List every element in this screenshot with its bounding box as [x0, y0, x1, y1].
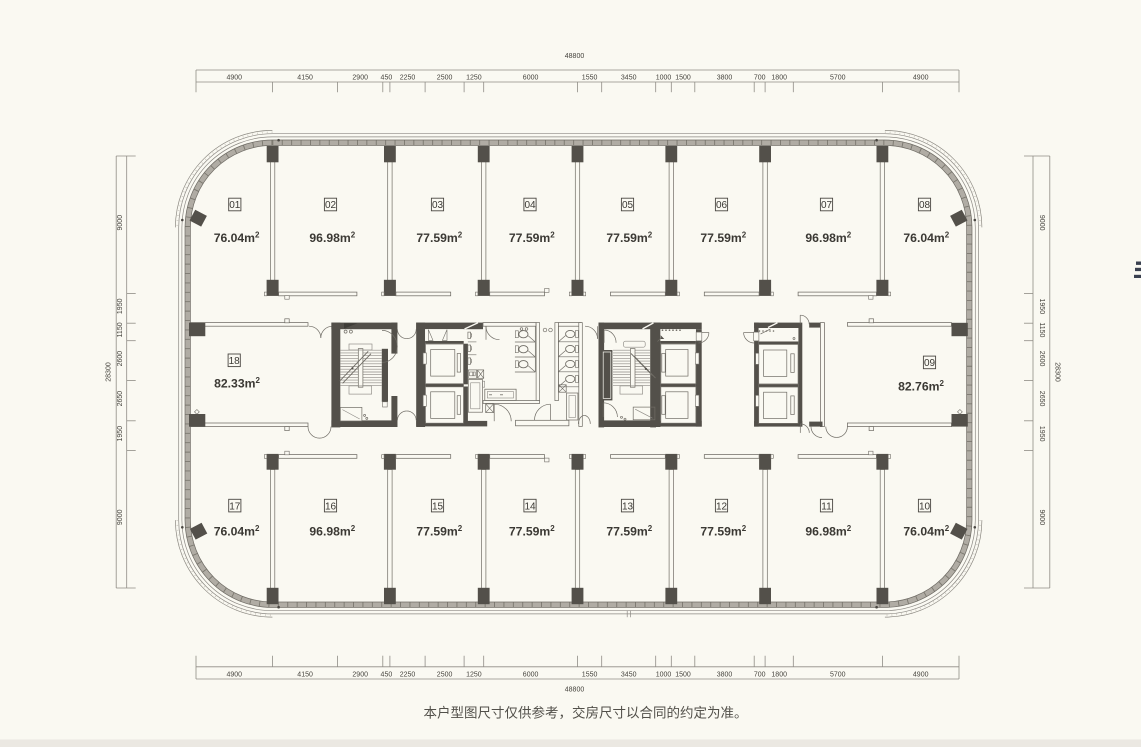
svg-text:09: 09: [924, 358, 936, 369]
svg-text:16: 16: [325, 501, 337, 512]
svg-text:4150: 4150: [297, 671, 313, 678]
svg-text:9000: 9000: [1038, 215, 1045, 231]
svg-text:1950: 1950: [117, 426, 124, 442]
svg-text:1150: 1150: [1038, 322, 1045, 337]
svg-text:82.76m2: 82.76m2: [898, 379, 944, 394]
svg-text:96.98m2: 96.98m2: [805, 231, 851, 246]
svg-text:3450: 3450: [621, 671, 637, 678]
svg-text:77.59m2: 77.59m2: [700, 231, 746, 246]
svg-text:28300: 28300: [106, 362, 113, 382]
svg-text:06: 06: [716, 200, 728, 211]
svg-text:11: 11: [821, 501, 832, 512]
svg-text:1950: 1950: [1038, 426, 1045, 442]
svg-text:17: 17: [229, 501, 241, 512]
svg-text:96.98m2: 96.98m2: [309, 231, 355, 246]
svg-text:1250: 1250: [466, 74, 482, 81]
svg-text:08: 08: [919, 200, 931, 211]
svg-text:15: 15: [432, 501, 444, 512]
svg-text:77.59m2: 77.59m2: [700, 524, 746, 539]
svg-text:96.98m2: 96.98m2: [805, 524, 851, 539]
svg-text:77.59m2: 77.59m2: [606, 524, 652, 539]
svg-text:1150: 1150: [117, 322, 124, 337]
svg-text:5700: 5700: [830, 671, 846, 678]
svg-text:18: 18: [229, 356, 241, 367]
svg-text:82.33m2: 82.33m2: [214, 376, 260, 391]
svg-text:76.04m2: 76.04m2: [214, 524, 260, 539]
svg-text:450: 450: [381, 74, 393, 81]
svg-text:76.04m2: 76.04m2: [214, 231, 260, 246]
svg-text:1800: 1800: [771, 74, 787, 81]
svg-text:48800: 48800: [565, 53, 585, 60]
svg-text:05: 05: [622, 200, 634, 211]
svg-text:4150: 4150: [297, 74, 313, 81]
svg-text:4900: 4900: [913, 671, 929, 678]
svg-text:2650: 2650: [1038, 391, 1045, 407]
svg-text:2250: 2250: [400, 74, 416, 81]
svg-text:1000: 1000: [656, 74, 672, 81]
svg-text:28300: 28300: [1054, 362, 1061, 382]
svg-text:6000: 6000: [523, 671, 539, 678]
svg-text:02: 02: [325, 200, 337, 211]
svg-text:77.59m2: 77.59m2: [509, 524, 555, 539]
svg-text:48800: 48800: [565, 687, 585, 694]
svg-text:1000: 1000: [656, 671, 672, 678]
svg-text:2500: 2500: [437, 74, 453, 81]
svg-text:13: 13: [622, 501, 634, 512]
svg-text:700: 700: [754, 671, 766, 678]
svg-text:9000: 9000: [117, 215, 124, 231]
svg-text:1800: 1800: [771, 671, 787, 678]
svg-text:5700: 5700: [830, 74, 846, 81]
svg-text:77.59m2: 77.59m2: [416, 231, 462, 246]
svg-text:77.59m2: 77.59m2: [606, 231, 652, 246]
svg-text:1550: 1550: [582, 671, 598, 678]
svg-text:76.04m2: 76.04m2: [903, 231, 949, 246]
svg-text:07: 07: [821, 200, 833, 211]
svg-text:4900: 4900: [227, 671, 243, 678]
svg-text:2600: 2600: [117, 351, 124, 367]
svg-text:3800: 3800: [717, 671, 733, 678]
svg-text:2900: 2900: [352, 74, 368, 81]
svg-text:2250: 2250: [400, 671, 416, 678]
svg-text:03: 03: [432, 200, 444, 211]
svg-text:2900: 2900: [352, 671, 368, 678]
svg-text:2600: 2600: [1038, 351, 1045, 367]
svg-text:76.04m2: 76.04m2: [903, 524, 949, 539]
svg-text:9000: 9000: [1038, 510, 1045, 526]
svg-text:04: 04: [524, 200, 536, 211]
svg-text:700: 700: [754, 74, 766, 81]
svg-text:96.98m2: 96.98m2: [309, 524, 355, 539]
svg-text:2650: 2650: [117, 391, 124, 407]
svg-text:1500: 1500: [675, 74, 691, 81]
svg-text:12: 12: [716, 501, 728, 512]
svg-text:450: 450: [381, 671, 393, 678]
svg-text:4900: 4900: [913, 74, 929, 81]
svg-text:1950: 1950: [117, 298, 124, 314]
svg-text:3450: 3450: [621, 74, 637, 81]
svg-text:4900: 4900: [227, 74, 243, 81]
svg-text:6000: 6000: [523, 74, 539, 81]
svg-text:9000: 9000: [117, 509, 124, 525]
svg-text:2500: 2500: [437, 671, 453, 678]
svg-text:14: 14: [524, 501, 536, 512]
svg-text:01: 01: [229, 200, 241, 211]
svg-text:1550: 1550: [582, 74, 598, 81]
svg-text:77.59m2: 77.59m2: [416, 524, 462, 539]
svg-text:本户型图尺寸仅供参考，交房尺寸以合同的约定为准。: 本户型图尺寸仅供参考，交房尺寸以合同的约定为准。: [424, 705, 748, 721]
svg-text:77.59m2: 77.59m2: [509, 231, 555, 246]
svg-text:1250: 1250: [466, 671, 482, 678]
svg-text:10: 10: [919, 501, 931, 512]
svg-text:1500: 1500: [675, 671, 691, 678]
svg-text:3800: 3800: [717, 74, 733, 81]
svg-text:1950: 1950: [1038, 299, 1045, 315]
